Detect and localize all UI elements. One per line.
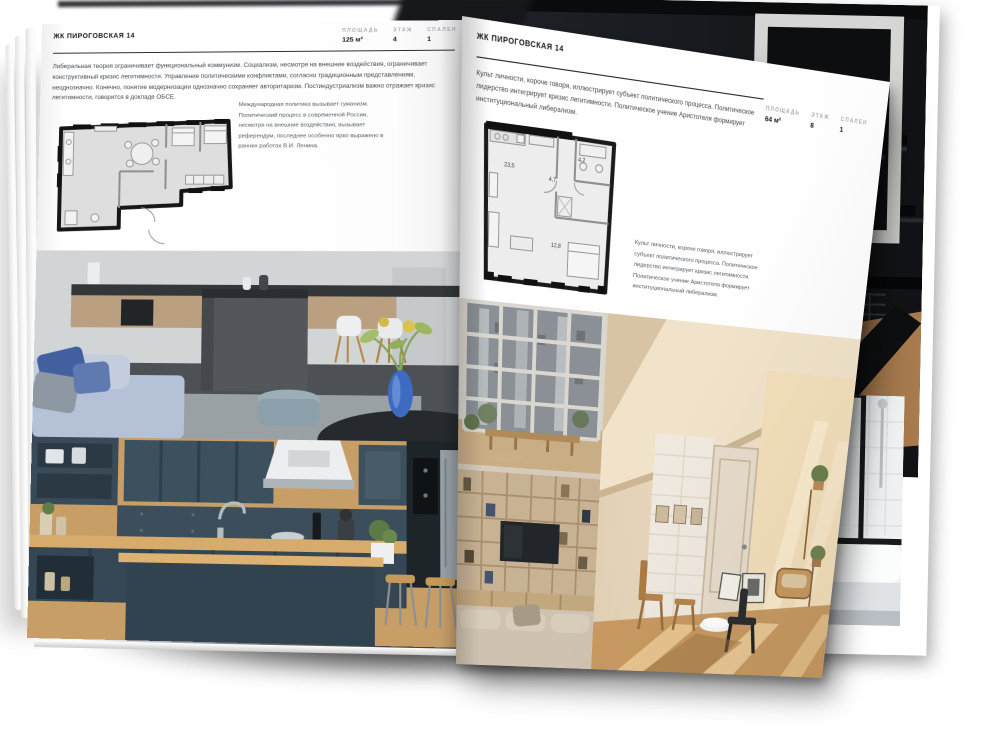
room-area-label: 23,5: [504, 162, 514, 170]
floor-plan-125: [53, 112, 235, 235]
left-page-caption: Международная политика вызывает гуманизм…: [238, 99, 390, 152]
room-area-label: 4,7: [549, 176, 556, 183]
room-area-label: 4,2: [578, 157, 585, 165]
photo-window-view: [458, 298, 608, 474]
right-page-title: ЖК ПИРОГОВСКАЯ 14: [477, 33, 564, 54]
stat-floor: ЭТАЖ 4: [393, 27, 413, 43]
photo-shelf-tv-lounge: [456, 463, 600, 669]
photo-attic-sunroom: [591, 313, 861, 678]
room-area-label: 12,8: [551, 243, 561, 250]
magazine-mockup: ЖК ПИРОГОВСКАЯ 14 ПЛОЩАДЬ 125 м² ЭТАЖ 4 …: [0, 0, 991, 740]
right-page-stats: ПЛОЩАДЬ 64 м² ЭТАЖ 8 СПАЛЕН 1: [765, 106, 868, 138]
floor-plan-64: 23,5 4,7 4,2 12,8: [476, 112, 623, 304]
left-page-stats: ПЛОЩАДЬ 125 м² ЭТАЖ 4 СПАЛЕН 1: [342, 27, 457, 44]
left-page: ЖК ПИРОГОВСКАЯ 14 ПЛОЩАДЬ 125 м² ЭТАЖ 4 …: [27, 20, 467, 648]
right-page: ЖК ПИРОГОВСКАЯ 14 Культ личности, короче…: [456, 16, 890, 678]
stat-area: ПЛОЩАДЬ 125 м²: [342, 28, 379, 44]
stat-floor: ЭТАЖ 8: [810, 112, 830, 132]
left-page-title: ЖК ПИРОГОВСКАЯ 14: [53, 33, 135, 40]
stat-bedrooms: СПАЛЕН 1: [427, 27, 457, 43]
left-page-body: Либеральная теория ограничивает функцион…: [52, 60, 446, 105]
photo-navy-kitchen: [27, 437, 467, 648]
right-page-caption: Культ личности, короче говоря, иллюстрир…: [632, 238, 772, 307]
photo-kitchen-island-living: [32, 250, 466, 442]
stat-bedrooms: СПАЛЕН 1: [839, 117, 868, 138]
header-rule: [53, 50, 455, 54]
